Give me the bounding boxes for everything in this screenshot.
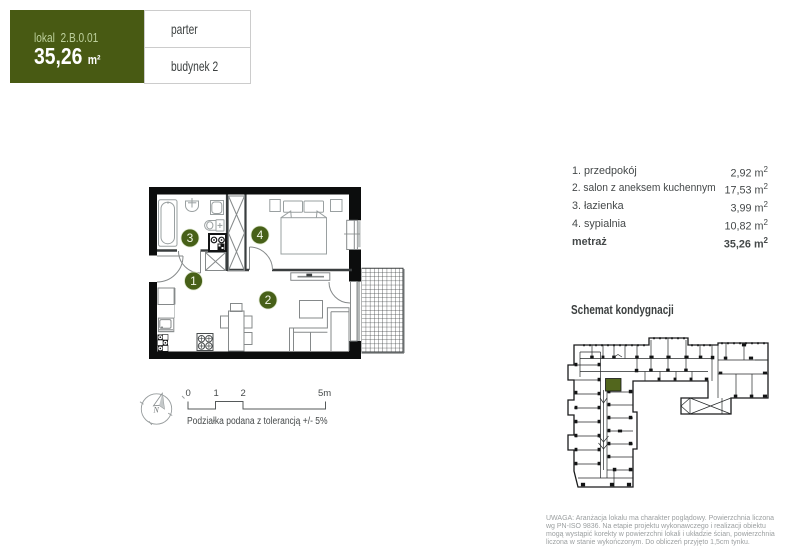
svg-text:2: 2 bbox=[241, 388, 246, 399]
svg-text:1: 1 bbox=[190, 274, 197, 288]
svg-text:N: N bbox=[153, 406, 160, 415]
svg-text:1: 1 bbox=[214, 388, 219, 399]
svg-text:4: 4 bbox=[257, 228, 264, 242]
svg-text:2: 2 bbox=[265, 293, 272, 307]
svg-text:5m: 5m bbox=[318, 388, 331, 399]
svg-text:0: 0 bbox=[186, 388, 191, 399]
svg-text:3: 3 bbox=[187, 231, 194, 245]
